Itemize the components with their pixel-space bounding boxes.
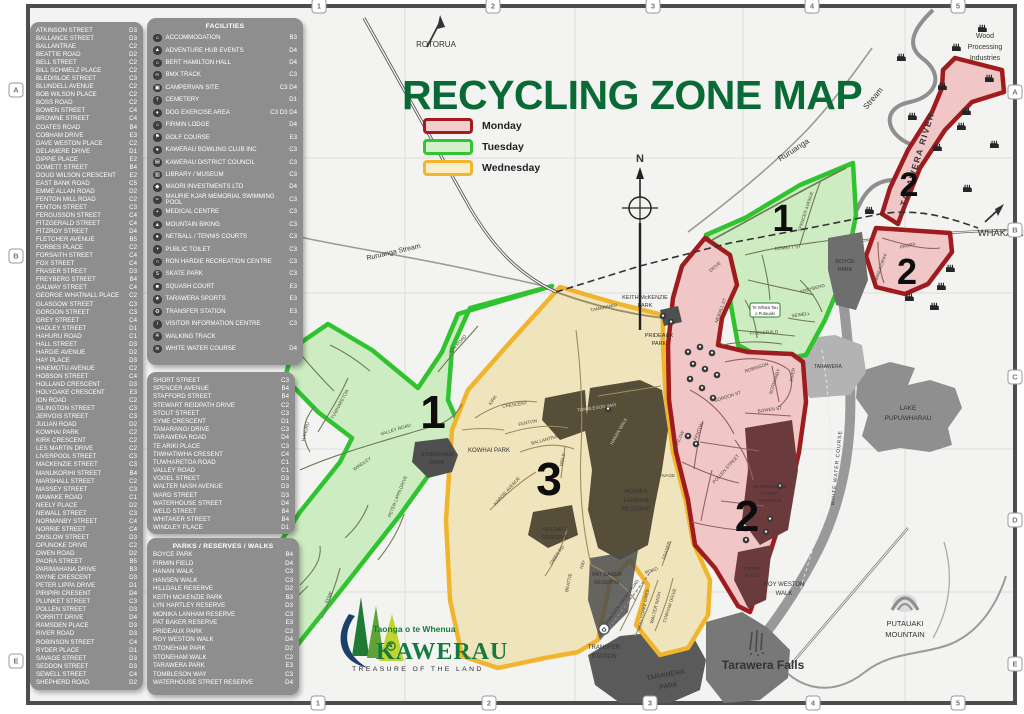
street-index-row: SPENCER AVENUE B4 [153,385,289,393]
street-index-row: GLASGOW STREET C3 [36,301,137,309]
street-index-row: HAHURU ROAD C1 [36,333,137,341]
park-name: HANSEN WALK [153,578,285,585]
facility-grid-ref: C3 [289,222,297,228]
park-grid-ref: D4 [285,561,293,568]
street-grid-ref: D4 [129,615,137,621]
park-name: KEITH MCKENZIE PARK [153,595,285,602]
grid-row-marker: C [1008,370,1023,385]
zone-number-wednesday: 3 [536,453,562,505]
street-grid-ref: C2 [129,44,137,50]
street-name: MACKENZIE STREET [36,462,98,468]
street-index-row: GORDON STREET C3 [36,309,137,317]
street-grid-ref: D2 [129,350,137,356]
street-name: HALL STREET [36,342,77,348]
facility-grid-ref: D4 [289,184,297,190]
grid-row-marker: D [1008,513,1023,528]
street-name: BELL STREET [36,60,77,66]
street-grid-ref: C3 [129,310,137,316]
street-name: GEORGE WHATNALL PLACE [36,293,119,299]
street-grid-ref: C3 [129,414,137,420]
transfer-station-label-1: TRANSFER [588,645,621,651]
logo-tagline-top: Taonga o te Whenua [373,624,456,634]
street-name: VOGEL STREET [153,476,200,482]
street-index-row: HINEMOTU AVENUE C2 [36,365,137,373]
street-name: DOMETT STREET [36,165,88,171]
street-grid-ref: C2 [129,84,137,90]
street-grid-ref: C2 [129,446,137,452]
street-name: COBHAM DRIVE [36,133,83,139]
street-index-row: GALWAY STREET C4 [36,285,137,293]
facility-grid-ref: C3 [289,321,297,327]
street-grid-ref: C4 [129,519,137,525]
street-name: SPENCER AVENUE [153,386,209,392]
facility-grid-ref: B3 [290,35,297,41]
street-name: COATES ROAD [36,125,80,131]
street-name: ISLINGTON STREET [36,406,95,412]
street-grid-ref: C4 [129,108,137,114]
facility-dot-icon [685,433,692,440]
street-name: SAVAGE STREET [36,656,86,662]
street-name: PORRITT DRIVE [36,615,83,621]
street-grid-ref: D1 [281,525,289,531]
facility-name: CAMPERVAN SITE [166,85,280,91]
street-index-row: HADLEY STREET D1 [36,325,137,333]
street-grid-ref: D3 [129,269,137,275]
grid-row-marker: A [9,83,24,98]
park-grid-ref: B3 [285,595,293,602]
school-badge-line1: Te Whata Tau [752,305,778,310]
putauaki-label-1: PUTAUAKI [887,619,924,628]
facilities-panel-title: FACILITIES [153,23,297,30]
street-grid-ref: C2 [129,430,137,436]
facility-grid-ref: E3 [290,135,297,141]
street-name: BILL SCHMELZ PLACE [36,68,101,74]
street-name: PARIMAHANA DRIVE [36,567,96,573]
street-index-row: HAY PLACE D3 [36,357,137,365]
street-name: STAFFORD STREET [153,394,212,400]
street-index-row: KOWHAI PARK C2 [36,429,137,437]
street-grid-ref: B3 [129,567,137,573]
facility-grid-ref: C3 D3 D4 [270,110,297,116]
park-grid-ref: C3 [285,578,293,585]
facility-row: i VISITOR INFORMATION CENTRE C3 [153,318,297,330]
facility-icon: ♻ [153,308,162,317]
street-index-row: WELD STREET B4 [153,508,289,516]
street-index-row: PORRITT DRIVE D4 [36,614,137,622]
street-index-row: PIRIPIRI CRESENT D4 [36,590,137,598]
street-grid-ref: C2 [129,245,137,251]
keith-mckenzie-label-1: KEITH McKENZIE [622,295,668,301]
grid-row-marker: A [1008,85,1023,100]
street-grid-ref: C3 [281,378,289,384]
street-name: HOLYOAKE CRESCENT [36,390,105,396]
facility-name: MAURIE KJAR MEMORIAL SWIMMING POOL [166,194,290,206]
facility-grid-ref: E3 [290,296,297,302]
school-badge-line2: o Putauaki [755,311,775,316]
park-name: BOYCE PARK [153,552,285,559]
facility-grid-ref: C3 [289,209,297,215]
street-index-row: STEWART REIDPATH DRIVE C2 [153,402,289,410]
facility-icon: ※ [153,332,162,341]
street-index-row: NEWALL STREET C3 [36,510,137,518]
street-name: TARAWERA ROAD [153,435,206,441]
facility-name: KAWERAU BOWLING CLUB INC [166,147,290,153]
street-index-row: MARSHALL STREET C2 [36,478,137,486]
street-name: WARD STREET [153,493,197,499]
park-name: STONEHAM PARK [153,646,285,653]
street-grid-ref: D1 [129,149,137,155]
facility-grid-ref: E3 [290,284,297,290]
street-index-row: BILL SCHMELZ PLACE C2 [36,67,137,75]
facility-name: KAWERAU DISTRICT COUNCIL [166,160,290,166]
grid-row-marker: E [1008,657,1023,672]
street-index-row: FERGUSSON STREET C4 [36,212,137,220]
street-grid-ref: D3 [281,493,289,499]
facility-name: NETBALL / TENNIS COURTS [166,234,290,240]
facility-grid-ref: D4 [289,122,297,128]
street-grid-ref: E2 [129,173,137,179]
street-name: DAVE WESTON PLACE [36,141,103,147]
facility-icon: ⌂ [153,121,162,130]
zone-legend: Monday Tuesday Wednesday [423,118,540,181]
street-name: PLUNKET STREET [36,599,90,605]
street-grid-ref: C4 [129,640,137,646]
street-name: NORMANBY STREET [36,519,97,525]
facilities-panel: FACILITIES ⌂ ACCOMMODATION B3 ▲ ADVENTUR… [147,18,303,365]
street-name: ION ROAD [36,398,66,404]
legend-label: Tuesday [482,141,524,153]
putauaki-label-2: MOUNTAIN [885,630,924,639]
facility-icon: † [153,96,162,105]
street-grid-ref: C2 [129,60,137,66]
street-index-row: TAMARANGI DRIVE C3 [153,426,289,434]
street-name: FERGUSSON STREET [36,213,101,219]
monika-lanham-label-1: MONIKA [624,489,648,495]
street-grid-ref: C4 [281,452,289,458]
facility-grid-ref: C3 [289,147,297,153]
street-name: ATKINSON STREET [36,28,93,34]
facility-name: WALKING TRACK [166,334,298,340]
street-index-row: STOUT STREET C3 [153,410,289,418]
facility-dot-icon [660,313,667,320]
street-index-row: PARIMAHANA DRIVE B3 [36,566,137,574]
monika-lanham-label-3: RESERVE [622,507,651,513]
street-name: FITZGERALD STREET [36,221,100,227]
street-index-row: TE ARIKI PLACE C3 [153,443,289,451]
grid-col-marker: 5 [951,0,966,14]
street-grid-ref: D3 [129,535,137,541]
street-index-row: SEDDON STREET D3 [36,663,137,671]
facility-row: + MEDICAL CENTRE C3 [153,206,297,218]
street-name: MAWAKE ROAD [36,495,82,501]
street-grid-ref: B4 [281,394,289,400]
grid-col-marker: 4 [806,696,821,711]
street-grid-ref: C4 [129,116,137,122]
facility-name: ADVENTURE HUB EVENTS [166,48,290,54]
grid-row-marker: E [9,654,24,669]
facility-row: ● KAWERAU BOWLING CLUB INC C3 [153,144,297,156]
street-name: EMME ALLAN ROAD [36,189,95,195]
street-grid-ref: D3 [129,575,137,581]
grid-row-marker: B [1008,223,1023,238]
street-index-row: JULIAN ROAD D2 [36,421,137,429]
street-index-row: PLUNKET STREET C3 [36,598,137,606]
street-index-row: HARDIE AVENUE D2 [36,349,137,357]
street-name: RAMSDEN PLACE [36,623,89,629]
facility-dot-icon [763,529,770,536]
pat-baker-label-2: RESERVE [594,580,620,586]
zone-number-monday-strip: 2 [900,166,919,204]
facility-icon: ■ [153,283,162,292]
street-index-row: DELAMERE DRIVE D1 [36,148,137,156]
facility-name: FIRMIN LODGE [166,122,290,128]
street-grid-ref: E3 [129,133,137,139]
street-index-row: FORBES PLACE C2 [36,244,137,252]
street-name: MARSHALL STREET [36,479,95,485]
monika-lanham-label-2: LANHAM [623,498,648,504]
street-index-row: FREYBERG STREET B4 [36,276,137,284]
park-grid-ref: E3 [285,663,293,670]
grid-col-marker: 3 [643,696,658,711]
street-name: BOB WILSON PLACE [36,92,97,98]
street-index-row: BALLANCE STREET D3 [36,35,137,43]
lake-label-2: PUPUWHARAU [885,415,932,422]
street-grid-ref: D4 [281,501,289,507]
waterhouse-label-1: WATERHOUSE [753,484,787,490]
street-grid-ref: B5 [129,559,137,565]
street-name: SHORT STREET [153,378,200,384]
street-grid-ref: C2 [129,100,137,106]
waterhouse-label-3: RESERVE [759,498,782,504]
street-name: SHEPHERD ROAD [36,680,90,686]
facility-icon: S [153,270,162,279]
facility-icon: + [153,208,162,217]
roy-weston-label-1: ROY WESTON [764,582,805,588]
facility-name: VISITOR INFORMATION CENTRE [166,321,290,327]
boyce-park-label-1: BOYCE [835,259,855,265]
street-index-row: BELL STREET C2 [36,59,137,67]
facility-grid-ref: C3 [289,259,297,265]
street-grid-ref: C4 [129,221,137,227]
street-index-row: TIWHATIWHA CRESENT C4 [153,451,289,459]
street-index-row: HOBSON STREET C4 [36,373,137,381]
street-index-row: MANUKORIHI STREET B4 [36,470,137,478]
street-index-row: SHEPHERD ROAD D2 [36,679,137,687]
street-name: DOUG WILSON CRESCENT [36,173,116,179]
street-index-row: FLETCHER AVENUE B5 [36,236,137,244]
street-name: KOWHAI PARK [36,430,79,436]
wood-processing-label-3: Industries [970,55,1001,62]
street-index-row: EMME ALLAN ROAD D2 [36,188,137,196]
wednesday-swatch [423,160,473,176]
street-name: FORBES PLACE [36,245,83,251]
street-name: ONSLOW STREET [36,535,89,541]
street-index-row: RYDER PLACE D1 [36,647,137,655]
park-grid-ref: C3 [285,612,293,619]
street-name: BALLANCE STREET [36,36,94,42]
facility-icon: ▲ [153,221,162,230]
facility-dot-icon [687,376,694,383]
park-grid-ref: C3 [285,569,293,576]
street-name: WINDLEY PLACE [153,525,203,531]
street-grid-ref: D3 [129,382,137,388]
street-name: SYME CRESCENT [153,419,206,425]
boyce-park-label-2: PARK [838,267,853,273]
street-grid-ref: C2 [129,366,137,372]
street-grid-ref: C3 [129,599,137,605]
facility-name: WHITE WATER COURSE [166,346,290,352]
park-name: ROY WESTON WALK [153,637,285,644]
facility-name: SQUASH COURT [166,284,290,290]
facility-row: ♻ TRANSFER STATION E3 [153,306,297,318]
grid-col-marker: 5 [951,696,966,711]
street-name: SEWELL STREET [36,672,87,678]
facility-grid-ref: D1 [289,97,297,103]
street-grid-ref: B4 [129,165,137,171]
street-grid-ref: C2 [129,293,137,299]
street-index-panel-1: ATKINSON STREET D3 BALLANCE STREET D3 BA… [30,22,143,690]
park-name: HANAN WALK [153,569,285,576]
facility-icon: ∩ [153,258,162,267]
street-index-row: BLEDISLOE STREET C3 [36,75,137,83]
street-name: FENTON STREET [36,205,87,211]
facility-icon: ≈ [153,196,162,205]
street-grid-ref: D3 [129,664,137,670]
wood-processing-label-2: Processing [968,44,1003,51]
street-index-row: DOMETT STREET B4 [36,164,137,172]
facility-name: PUBLIC TOILET [166,247,290,253]
facility-row: ≈ MAURIE KJAR MEMORIAL SWIMMING POOL C3 [153,194,297,206]
street-index-row: SYME CRESCENT D1 [153,418,289,426]
facilities-list: ⌂ ACCOMMODATION B3 ▲ ADVENTURE HUB EVENT… [153,32,297,355]
street-grid-ref: C4 [129,253,137,259]
park-grid-ref: D4 [285,637,293,644]
street-index-row: LES MARTIN DRIVE C2 [36,445,137,453]
street-name: STOUT STREET [153,411,200,417]
facility-icon: ⚑ [153,133,162,142]
street-name: OWEN ROAD [36,551,75,557]
street-name: PETER LIPPA DRIVE [36,583,95,589]
street-index-row: WALTER NASH AVENUE D3 [153,483,289,491]
facility-name: BERT HAMILTON HALL [166,60,290,66]
facility-row: ♦ DOG EXERCISE AREA C3 D3 D4 [153,107,297,119]
street-name: HOLLAND CRESCENT [36,382,101,388]
street-grid-ref: D3 [129,28,137,34]
facility-grid-ref: C3 [289,271,297,277]
street-grid-ref: C4 [129,261,137,267]
facility-row: ⌂ ACCOMMODATION B3 [153,32,297,44]
street-index-row: BROWNE STREET C4 [36,116,137,124]
street-grid-ref: C2 [129,398,137,404]
street-index-row: FENTON MILL ROAD C2 [36,196,137,204]
street-grid-ref: D2 [129,680,137,686]
street-index-row: RIVER ROAD D3 [36,631,137,639]
street-grid-ref: C2 [129,141,137,147]
street-index-row: BEATTIE ROAD D2 [36,51,137,59]
facility-icon: ▣ [153,84,162,93]
street-grid-ref: C1 [281,468,289,474]
transfer-station-label-2: STATION [591,654,616,660]
prideaux-park-label-1: PRIDEAUX [645,333,674,339]
facility-icon: ⌂ [153,34,162,43]
street-grid-ref: C3 [129,205,137,211]
street-index-row: FITZROY STREET D4 [36,228,137,236]
street-index-row: PAYNE CRESCENT D3 [36,574,137,582]
roy-weston-label-2: WALK [776,591,793,597]
street-name: GREY STREET [36,318,79,324]
park-name: HILLDALE RESERVE [153,586,285,593]
hilldale-label-1: HILLDALE [542,527,568,533]
park-grid-ref: D4 [285,680,293,687]
street-grid-ref: D1 [129,583,137,589]
street-name: TE ARIKI PLACE [153,444,200,450]
facility-row: ▤ KAWERAU DISTRICT COUNCIL C3 [153,156,297,168]
street-name: FREYBERG STREET [36,277,96,283]
pat-baker-label-1: PAT BAKER [592,572,621,578]
street-name: MASSEY STREET [36,487,87,493]
street-grid-ref: C3 [129,462,137,468]
facility-name: DOG EXERCISE AREA [166,110,271,116]
street-name: OPUNOKE DRIVE [36,543,87,549]
street-index-row: KIRK CRESCENT C2 [36,437,137,445]
street-name: WELD STREET [153,509,197,515]
facility-row: S SKATE PARK C3 [153,268,297,280]
street-index-row: VALLEY ROAD C1 [153,467,289,475]
parks-list: BOYCE PARK B4 FIRMIN FIELD D4 HANAN WALK… [153,552,293,689]
street-grid-ref: E3 [129,390,137,396]
street-grid-ref: B5 [129,237,137,243]
zone-number-monday-paora: 2 [897,251,917,292]
street-name: RYDER PLACE [36,648,79,654]
street-name: FLETCHER AVENUE [36,237,95,243]
street-grid-ref: D3 [281,484,289,490]
facility-row: ▣ CAMPERVAN SITE C3 D4 [153,82,297,94]
street-index-row: RAMSDEN PLACE D3 [36,622,137,630]
grid-col-marker: 3 [646,0,661,14]
street-name: NEELY PLACE [36,503,77,509]
street-grid-ref: B4 [129,125,137,131]
zone-number-monday-central: 2 [735,492,759,541]
facility-row: ◆ MAORI INVESTMENTS LTD D4 [153,181,297,193]
street-index-row: SEWELL STREET C4 [36,671,137,679]
logo-tagline-bottom: TREASURE OF THE LAND [352,666,484,673]
facility-dot-icon [767,516,774,523]
street-index-row: ION ROAD C2 [36,397,137,405]
street-grid-ref: B4 [281,509,289,515]
street-index-row: WINDLEY PLACE D1 [153,524,289,532]
street-name: ROBINSON STREET [36,640,95,646]
grid-col-marker: 2 [486,0,501,14]
street-name: FITZROY STREET [36,229,88,235]
street-grid-ref: D3 [129,623,137,629]
street-index-row: DOUG WILSON CRESCENT E2 [36,172,137,180]
park-name: TARAWERA PARK [153,663,285,670]
facility-row: ∩ RON HARDIE RECREATION CENTRE C3 [153,256,297,268]
facility-icon: i [153,320,162,329]
street-index-row: FRASER STREET D3 [36,268,137,276]
facility-name: MEDICAL CENTRE [166,209,290,215]
street-grid-ref: C4 [129,285,137,291]
street-index-row: FORSAITH STREET C4 [36,252,137,260]
park-grid-ref: C2 [285,655,293,662]
park-grid-ref: C3 [285,672,293,679]
street-index-row: HALL STREET D3 [36,341,137,349]
park-name: PRIDEAUX PARK [153,629,285,636]
street-index-row: OWEN ROAD D2 [36,550,137,558]
street-name: RIVER ROAD [36,631,74,637]
facility-row: ▲ MOUNTAIN BIKING C3 [153,219,297,231]
street-index-row: BLUNDELL AVENUE C2 [36,83,137,91]
